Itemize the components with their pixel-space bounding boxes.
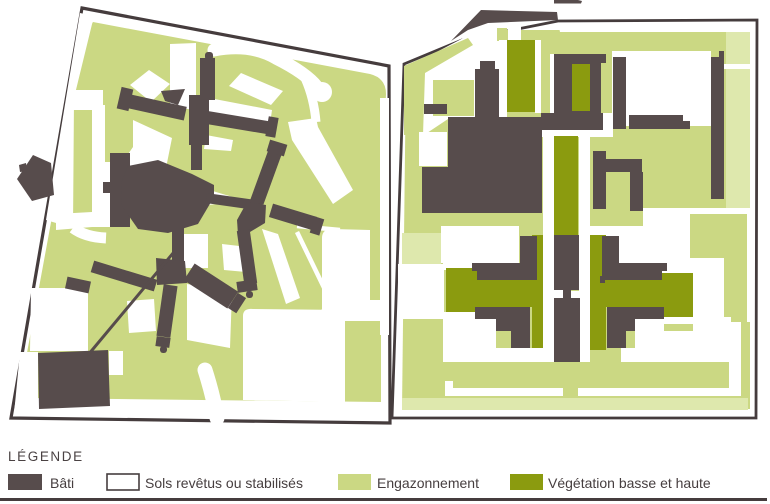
svg-text:Engazonnement: Engazonnement [377, 475, 479, 491]
svg-text:Bâti: Bâti [50, 475, 74, 491]
svg-text:LÉGENDE: LÉGENDE [8, 449, 84, 464]
svg-text:Végétation basse et haute: Végétation basse et haute [548, 475, 711, 491]
svg-text:Sols revêtus ou stabilisés: Sols revêtus ou stabilisés [145, 475, 303, 491]
